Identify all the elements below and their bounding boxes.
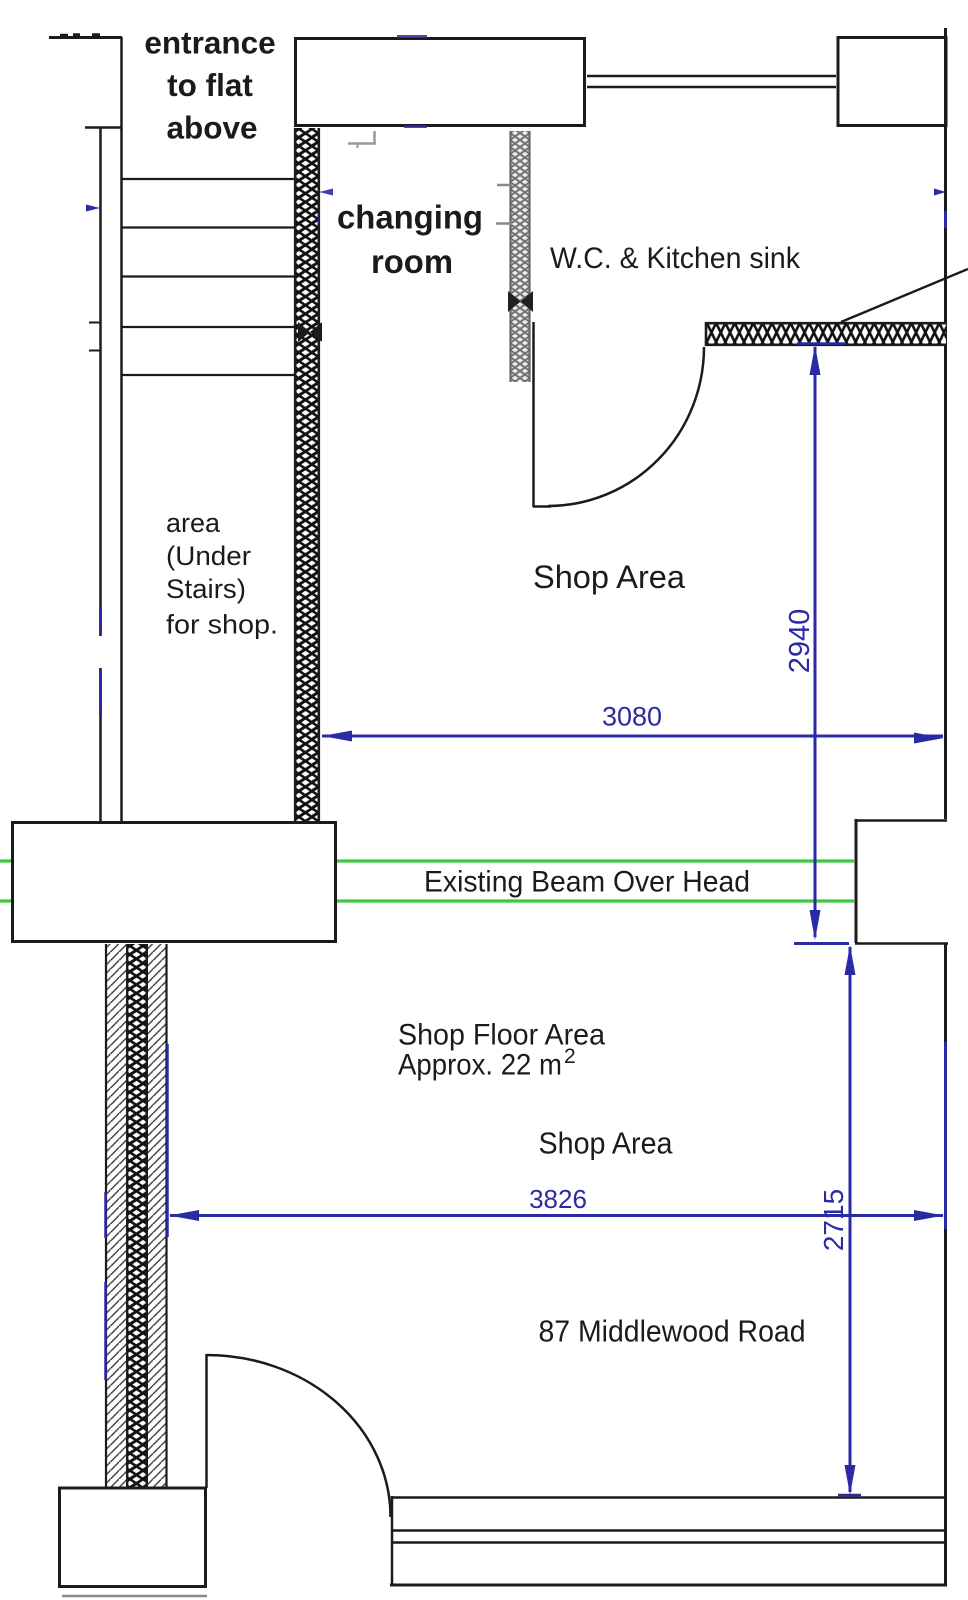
svg-text:Existing Beam Over Head: Existing Beam Over Head: [424, 866, 750, 899]
svg-text:3826: 3826: [529, 1184, 587, 1214]
svg-text:for shop.: for shop.: [166, 610, 278, 640]
svg-text:area: area: [166, 508, 221, 538]
svg-text:Stairs): Stairs): [166, 574, 246, 604]
svg-text:Approx. 22 m: Approx. 22 m: [398, 1049, 562, 1082]
svg-text:entrance: entrance: [144, 25, 275, 61]
svg-text:2: 2: [564, 1045, 576, 1068]
svg-text:above: above: [166, 110, 257, 146]
svg-text:3080: 3080: [602, 702, 662, 732]
svg-text:2940: 2940: [784, 609, 816, 674]
svg-text:(Under: (Under: [166, 541, 251, 571]
svg-text:to flat: to flat: [167, 67, 253, 103]
svg-text:2715: 2715: [818, 1189, 849, 1251]
svg-text:Shop Area: Shop Area: [533, 559, 685, 595]
svg-text:changing: changing: [337, 199, 483, 236]
svg-text:W.C. & Kitchen sink: W.C. & Kitchen sink: [550, 242, 801, 275]
svg-text:87 Middlewood Road: 87 Middlewood Road: [539, 1314, 806, 1349]
svg-text:Shop Area: Shop Area: [539, 1126, 674, 1161]
svg-text:room: room: [371, 243, 453, 280]
